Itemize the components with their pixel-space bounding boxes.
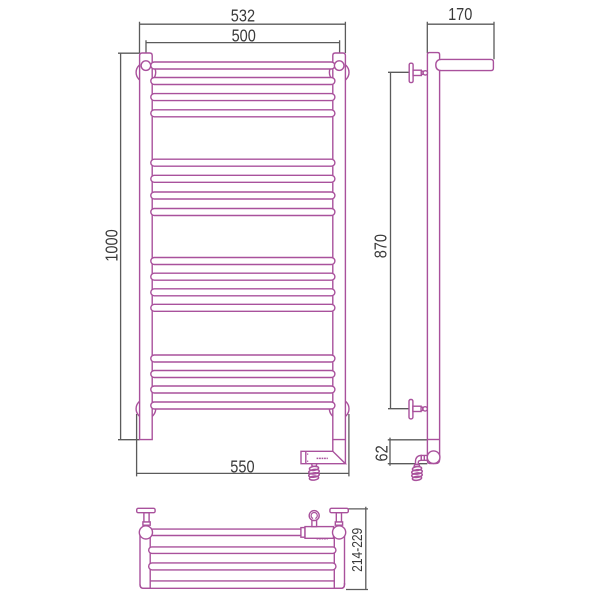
svg-text:550: 550	[230, 457, 254, 477]
svg-text:1000: 1000	[102, 229, 122, 261]
svg-text:500: 500	[232, 26, 256, 46]
svg-text:62: 62	[372, 445, 392, 461]
svg-text:532: 532	[231, 6, 255, 26]
svg-text:170: 170	[448, 5, 472, 25]
svg-text:870: 870	[371, 234, 391, 258]
svg-text:214-229: 214-229	[349, 528, 366, 572]
